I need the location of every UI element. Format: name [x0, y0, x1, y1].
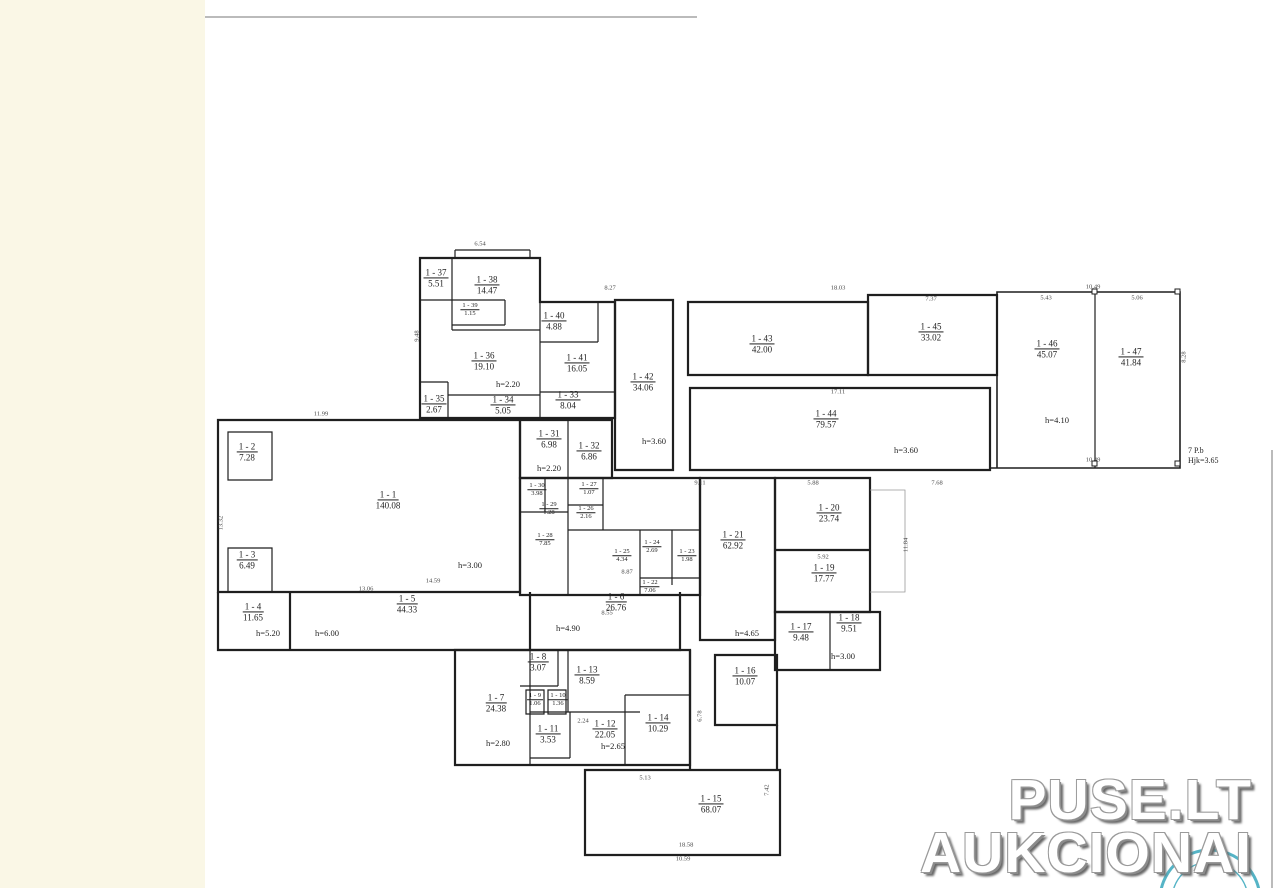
dimension-label: 6.54 [474, 241, 485, 248]
dimension-label: 13.06 [359, 586, 374, 593]
room-number: 1 - 47 [1119, 346, 1144, 357]
height-note: h=3.60 [642, 436, 666, 446]
height-note: h=2.20 [537, 463, 561, 473]
interior-topleft [420, 258, 615, 418]
room-label-1-31: 1 - 316.98 [537, 428, 562, 449]
room-number: 1 - 25 [612, 548, 631, 556]
dimension-label: 8.27 [604, 285, 615, 292]
room-label-1-5: 1 - 544.33 [397, 593, 418, 614]
room-number: 1 - 42 [631, 371, 656, 382]
room-label-1-16: 1 - 1610.07 [733, 665, 758, 686]
height-note: h=4.65 [735, 628, 759, 638]
room-area: 140.08 [376, 501, 401, 511]
room-area: 7.28 [237, 453, 258, 463]
room-area: 5.05 [491, 406, 516, 416]
room-label-1-10: 1 - 101.36 [548, 692, 567, 708]
room-label-1-2: 1 - 27.28 [237, 441, 258, 462]
room-area: 1.36 [548, 701, 567, 708]
room-area: 8.04 [556, 401, 581, 411]
room-number: 1 - 5 [397, 593, 418, 604]
room-label-1-41: 1 - 4116.05 [565, 352, 590, 373]
room-label-1-1: 1 - 1140.08 [376, 489, 401, 510]
dimension-label: 10.49 [1086, 457, 1101, 464]
dimension-label: 5.13 [639, 775, 650, 782]
room-label-1-19: 1 - 1917.77 [812, 562, 837, 583]
room-label-1-35: 1 - 352.67 [422, 393, 447, 414]
room-number: 1 - 18 [837, 612, 862, 623]
room-label-1-30: 1 - 303.98 [527, 482, 546, 498]
walls-room-43 [688, 302, 868, 375]
room-number: 1 - 44 [814, 408, 839, 419]
room-label-1-44: 1 - 4479.57 [814, 408, 839, 429]
height-note: h=4.10 [1045, 415, 1069, 425]
room-number: 1 - 23 [677, 548, 696, 556]
height-note: h=6.00 [315, 628, 339, 638]
room-area: 2.16 [576, 514, 595, 521]
watermark-line1: PUSE.LT [920, 774, 1252, 827]
room-area: 42.00 [750, 345, 775, 355]
room-number: 1 - 11 [536, 723, 561, 734]
walls-room-21 [700, 478, 775, 640]
room-label-1-27: 1 - 271.07 [579, 481, 598, 497]
room-label-1-4: 1 - 411.65 [243, 601, 264, 622]
floorplan-drawing [0, 0, 1280, 888]
room-number: 1 - 13 [575, 664, 600, 675]
dimension-label: 8.28 [1181, 351, 1188, 362]
room-number: 1 - 26 [576, 505, 595, 513]
room-label-1-34: 1 - 345.05 [491, 394, 516, 415]
room-area: 79.57 [814, 420, 839, 430]
dimension-label: 7.42 [764, 784, 771, 795]
room-label-1-32: 1 - 326.86 [577, 440, 602, 461]
room-area: 6.98 [537, 440, 562, 450]
height-note: h=2.80 [486, 738, 510, 748]
room-number: 1 - 35 [422, 393, 447, 404]
room-number: 1 - 32 [577, 440, 602, 451]
room-number: 1 - 12 [593, 718, 618, 729]
room-label-1-42: 1 - 4234.06 [631, 371, 656, 392]
room-label-1-23: 1 - 231.98 [677, 548, 696, 564]
room-area: 3.07 [528, 663, 549, 673]
dimension-label: 11.99 [314, 411, 328, 418]
room-label-1-9: 1 - 91.06 [527, 692, 543, 708]
room-area: 1.98 [677, 557, 696, 564]
room-label-1-37: 1 - 375.51 [424, 267, 449, 288]
room-number: 1 - 33 [556, 389, 581, 400]
dimension-label: 5.92 [817, 554, 828, 561]
dimension-label: 7.37 [925, 296, 936, 303]
room-area: 1.07 [579, 490, 598, 497]
walls-topleft-cluster [420, 258, 615, 418]
room-label-1-40: 1 - 404.88 [542, 310, 567, 331]
room-area: 1.15 [460, 311, 479, 318]
room-area: 10.07 [733, 677, 758, 687]
watermark-line2: AUKCIONAI [920, 827, 1252, 880]
dimension-label: 14.59 [426, 578, 441, 585]
room-label-1-8: 1 - 83.07 [528, 651, 549, 672]
room-area: 14.47 [475, 286, 500, 296]
room-area: 24.38 [486, 704, 507, 714]
room-label-1-7: 1 - 724.38 [486, 692, 507, 713]
dimension-label: 18.03 [831, 285, 846, 292]
room-area: 3.98 [527, 491, 546, 498]
room-label-1-3: 1 - 36.49 [237, 549, 258, 570]
room-area: 19.10 [472, 362, 497, 372]
room-area: 44.33 [397, 605, 418, 615]
room-area: 16.05 [565, 364, 590, 374]
room-area: 22.05 [593, 730, 618, 740]
room-label-1-33: 1 - 338.04 [556, 389, 581, 410]
room-area: 10.29 [646, 724, 671, 734]
room-number: 1 - 45 [919, 321, 944, 332]
room-label-1-39: 1 - 391.15 [460, 302, 479, 318]
room-area: 1.28 [539, 510, 558, 517]
room-number: 1 - 3 [237, 549, 258, 560]
room-number: 1 - 43 [750, 333, 775, 344]
room-label-1-22: 1 - 227.06 [640, 579, 659, 595]
room-number: 1 - 38 [475, 274, 500, 285]
room-area: 6.86 [577, 452, 602, 462]
room-number: 1 - 37 [424, 267, 449, 278]
height-note: h=2.20 [496, 379, 520, 389]
room-number: 1 - 27 [579, 481, 598, 489]
dimension-label: 9.11 [694, 480, 705, 487]
room-area: 5.51 [424, 279, 449, 289]
dimension-label: 8.87 [621, 569, 632, 576]
room-area: 9.51 [837, 624, 862, 634]
room-label-1-20: 1 - 2023.74 [817, 502, 842, 523]
room-number: 1 - 24 [642, 539, 661, 547]
room-area: 8.59 [575, 676, 600, 686]
room-number: 1 - 41 [565, 352, 590, 363]
room-area: 45.07 [1035, 350, 1060, 360]
room-area: 4.34 [612, 557, 631, 564]
dimension-label: 6.78 [697, 710, 704, 721]
room-number: 1 - 19 [812, 562, 837, 573]
dimension-label: 9.48 [414, 330, 421, 341]
room-number: 1 - 46 [1035, 338, 1060, 349]
dimension-label: 18.58 [679, 842, 694, 849]
room-number: 1 - 22 [640, 579, 659, 587]
corner-note: 7 P.b Hjk=3.65 [1188, 446, 1219, 466]
corner-note-line2: Hjk=3.65 [1188, 456, 1219, 466]
room-area: 9.48 [789, 633, 814, 643]
room-label-1-17: 1 - 179.48 [789, 621, 814, 642]
dimension-label: 5.06 [1131, 295, 1142, 302]
room-area: 17.77 [812, 574, 837, 584]
room-label-1-15: 1 - 1568.07 [699, 793, 724, 814]
survey-marker [1175, 461, 1180, 466]
room-area: 6.49 [237, 561, 258, 571]
room-area: 4.88 [542, 322, 567, 332]
room-area: 26.76 [606, 603, 627, 613]
room-area: 62.92 [721, 541, 746, 551]
height-note: h=3.00 [458, 560, 482, 570]
room-label-1-28: 1 - 287.85 [535, 532, 554, 548]
room-area: 7.06 [640, 588, 659, 595]
room-number: 1 - 4 [243, 601, 264, 612]
room-number: 1 - 17 [789, 621, 814, 632]
room-number: 1 - 28 [535, 532, 554, 540]
room-label-1-36: 1 - 3619.10 [472, 350, 497, 371]
height-note: h=3.00 [831, 651, 855, 661]
dimension-label: 17.11 [831, 389, 845, 396]
room-number: 1 - 20 [817, 502, 842, 513]
aux-extension-lines [870, 490, 905, 592]
room-number: 1 - 36 [472, 350, 497, 361]
room-area: 11.65 [243, 613, 264, 623]
room-number: 1 - 29 [539, 501, 558, 509]
height-note: h=2.65 [601, 741, 625, 751]
room-area: 41.84 [1119, 358, 1144, 368]
room-label-1-29: 1 - 291.28 [539, 501, 558, 517]
room-label-1-26: 1 - 262.16 [576, 505, 595, 521]
room-number: 1 - 14 [646, 712, 671, 723]
dimension-label: 7.68 [931, 480, 942, 487]
walls-room-44 [690, 388, 990, 470]
walls-hall-46-47 [990, 292, 1180, 468]
room-number: 1 - 8 [528, 651, 549, 662]
height-note: h=4.90 [556, 623, 580, 633]
corner-note-line1: 7 P.b [1188, 446, 1219, 456]
room-number: 1 - 30 [527, 482, 546, 490]
dimension-label: 5.88 [807, 480, 818, 487]
room-number: 1 - 7 [486, 692, 507, 703]
room-label-1-21: 1 - 2162.92 [721, 529, 746, 550]
room-label-1-6: 1 - 626.76 [606, 591, 627, 612]
room-label-1-47: 1 - 4741.84 [1119, 346, 1144, 367]
room-area: 1.06 [527, 701, 543, 708]
room-number: 1 - 40 [542, 310, 567, 321]
room-label-1-38: 1 - 3814.47 [475, 274, 500, 295]
dimension-label: 10.49 [1086, 284, 1101, 291]
dimension-label: 5.43 [1040, 295, 1051, 302]
dimension-label: 10.59 [676, 856, 691, 863]
room-label-1-24: 1 - 242.69 [642, 539, 661, 555]
dimension-label: 13.32 [218, 516, 225, 531]
room-label-1-45: 1 - 4533.02 [919, 321, 944, 342]
room-area: 68.07 [699, 805, 724, 815]
room-label-1-43: 1 - 4342.00 [750, 333, 775, 354]
watermark: PUSE.LT AUKCIONAI [920, 774, 1252, 880]
room-number: 1 - 2 [237, 441, 258, 452]
scanned-floorplan-page: 1 - 1140.081 - 27.281 - 36.491 - 411.651… [0, 0, 1280, 888]
room-number: 1 - 15 [699, 793, 724, 804]
room-number: 1 - 6 [606, 591, 627, 602]
room-label-1-25: 1 - 254.34 [612, 548, 631, 564]
room-area: 3.53 [536, 735, 561, 745]
height-note: h=3.60 [894, 445, 918, 455]
walls-rooms-20-19 [775, 478, 870, 612]
room-number: 1 - 9 [527, 692, 543, 700]
room-area: 34.06 [631, 383, 656, 393]
room-area: 2.69 [642, 548, 661, 555]
room-area: 7.85 [535, 541, 554, 548]
room-number: 1 - 1 [378, 489, 399, 500]
room-number: 1 - 10 [548, 692, 567, 700]
room-label-1-11: 1 - 113.53 [536, 723, 561, 744]
room-number: 1 - 16 [733, 665, 758, 676]
room-label-1-18: 1 - 189.51 [837, 612, 862, 633]
dimension-label: 2.24 [577, 718, 588, 725]
room-label-1-46: 1 - 4645.07 [1035, 338, 1060, 359]
room-area: 23.74 [817, 514, 842, 524]
dimension-label: 11.84 [903, 538, 910, 552]
room-number: 1 - 34 [491, 394, 516, 405]
room-number: 1 - 31 [537, 428, 562, 439]
survey-marker [1175, 289, 1180, 294]
room-label-1-13: 1 - 138.59 [575, 664, 600, 685]
room-number: 1 - 39 [460, 302, 479, 310]
room-area: 33.02 [919, 333, 944, 343]
room-label-1-14: 1 - 1410.29 [646, 712, 671, 733]
height-note: h=5.20 [256, 628, 280, 638]
room-label-1-12: 1 - 1222.05 [593, 718, 618, 739]
room-number: 1 - 21 [721, 529, 746, 540]
balcony-line [455, 250, 530, 258]
room-area: 2.67 [422, 405, 447, 415]
